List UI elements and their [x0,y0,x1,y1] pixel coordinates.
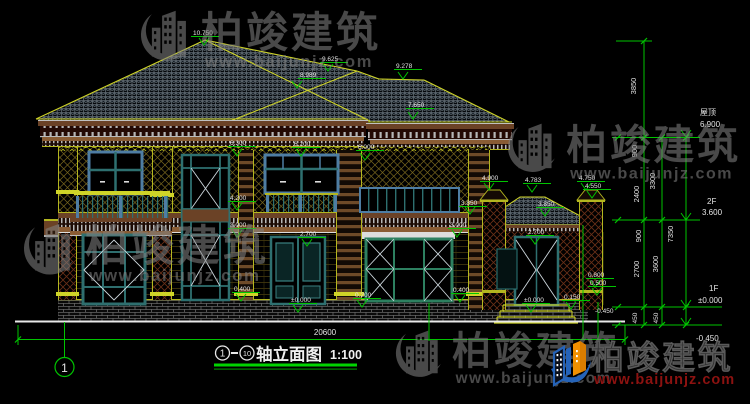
svg-text:1: 1 [61,361,68,375]
svg-text:-0.450: -0.450 [595,308,614,315]
svg-text:3600: 3600 [651,256,660,273]
svg-text:www.baijunjz.com: www.baijunjz.com [88,266,260,285]
svg-text:8.989: 8.989 [300,72,317,79]
svg-text:柏竣建筑: 柏竣建筑 [566,122,741,168]
svg-text:轴立面图: 轴立面图 [256,344,322,364]
svg-text:1:100: 1:100 [330,348,362,362]
svg-text:www.baijunjz.com: www.baijunjz.com [569,165,733,182]
svg-text:2700: 2700 [632,261,641,278]
svg-text:2.700: 2.700 [528,229,545,236]
svg-text:柏竣建筑: 柏竣建筑 [201,9,381,56]
svg-text:2F: 2F [707,197,716,206]
svg-text:0.500: 0.500 [590,280,607,287]
svg-text:0.400: 0.400 [234,286,251,293]
svg-text:6.000: 6.000 [358,144,375,151]
svg-text:±0.000: ±0.000 [524,297,544,304]
svg-text:屋顶: 屋顶 [700,108,716,117]
svg-text:±0.000: ±0.000 [698,296,723,305]
svg-text:1F: 1F [709,284,718,293]
svg-text:3.850: 3.850 [461,200,478,207]
svg-text:1: 1 [220,349,226,360]
svg-text:3.000: 3.000 [450,222,467,229]
svg-text:4.550: 4.550 [585,183,602,190]
svg-text:450: 450 [632,312,639,323]
svg-text:900: 900 [634,230,643,243]
svg-text:9.278: 9.278 [396,63,413,70]
svg-text:3.850: 3.850 [538,201,555,208]
svg-text:20600: 20600 [314,328,337,337]
svg-text:0.200: 0.200 [355,292,372,299]
svg-text:0.150: 0.150 [564,294,581,301]
svg-text:2.700: 2.700 [300,231,317,238]
svg-text:www.baijunjz.com: www.baijunjz.com [593,372,735,388]
svg-text:3.600: 3.600 [702,208,723,217]
svg-text:4.783: 4.783 [525,177,542,184]
svg-text:7.650: 7.650 [408,102,425,109]
svg-text:0.400: 0.400 [453,287,470,294]
svg-text:450: 450 [653,312,660,323]
svg-text:4.900: 4.900 [482,175,499,182]
svg-text:4.200: 4.200 [230,195,247,202]
svg-text:www.baijunjz.com: www.baijunjz.com [455,370,612,387]
svg-text:柏竣建筑: 柏竣建筑 [591,339,733,376]
svg-text:6.200: 6.200 [294,141,311,148]
svg-text:2400: 2400 [632,186,641,203]
svg-text:www.baijunjz.com: www.baijunjz.com [204,53,373,71]
svg-text:0.800: 0.800 [588,272,605,279]
svg-text:6.300: 6.300 [230,140,247,147]
svg-text:7350: 7350 [666,226,675,243]
svg-text:3850: 3850 [629,78,638,95]
svg-text:柏竣建筑: 柏竣建筑 [85,223,269,271]
svg-text:±0.000: ±0.000 [291,297,311,304]
svg-text:10: 10 [243,349,251,358]
